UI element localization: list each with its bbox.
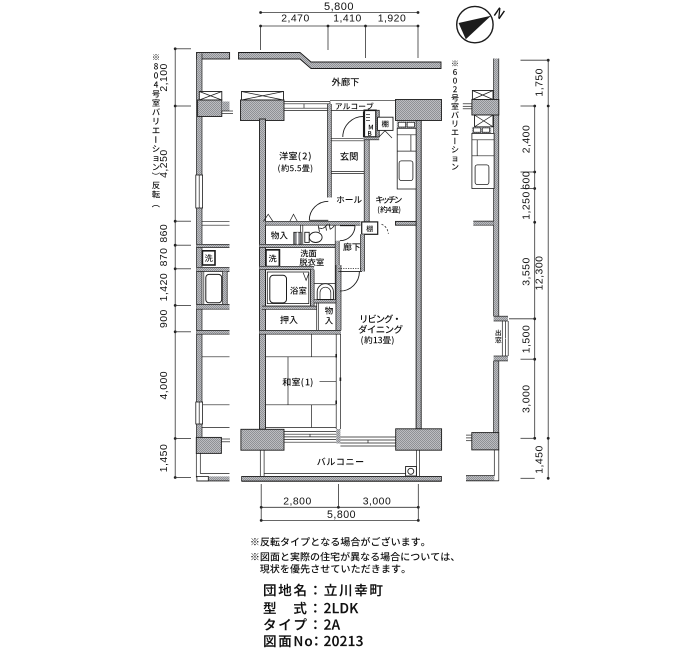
svg-text:860: 860 (159, 224, 170, 243)
svg-text:1,450: 1,450 (535, 445, 546, 474)
svg-text:900: 900 (159, 309, 170, 328)
svg-text:4,000: 4,000 (159, 371, 170, 400)
svg-text:1,500: 1,500 (521, 325, 532, 354)
svg-text:5,800: 5,800 (327, 509, 356, 521)
svg-text:3,000: 3,000 (521, 384, 532, 413)
svg-text:2,800: 2,800 (283, 497, 312, 508)
svg-text:1,750: 1,750 (535, 68, 546, 97)
svg-text:2,470: 2,470 (281, 14, 310, 25)
svg-text:2,100: 2,100 (159, 63, 170, 92)
svg-text:4,250: 4,250 (159, 149, 170, 178)
svg-text:600: 600 (521, 171, 532, 190)
svg-text:870: 870 (159, 248, 170, 267)
svg-text:3,550: 3,550 (521, 257, 532, 286)
svg-text:2,400: 2,400 (521, 125, 532, 154)
svg-text:12,300: 12,300 (535, 256, 546, 291)
svg-text:1,920: 1,920 (378, 14, 407, 25)
svg-text:1,450: 1,450 (159, 444, 170, 473)
svg-text:1,420: 1,420 (159, 273, 170, 302)
svg-text:5,800: 5,800 (324, 1, 354, 13)
svg-text:1,250: 1,250 (521, 191, 532, 220)
svg-text:1,410: 1,410 (333, 14, 362, 25)
svg-text:3,000: 3,000 (363, 497, 392, 508)
